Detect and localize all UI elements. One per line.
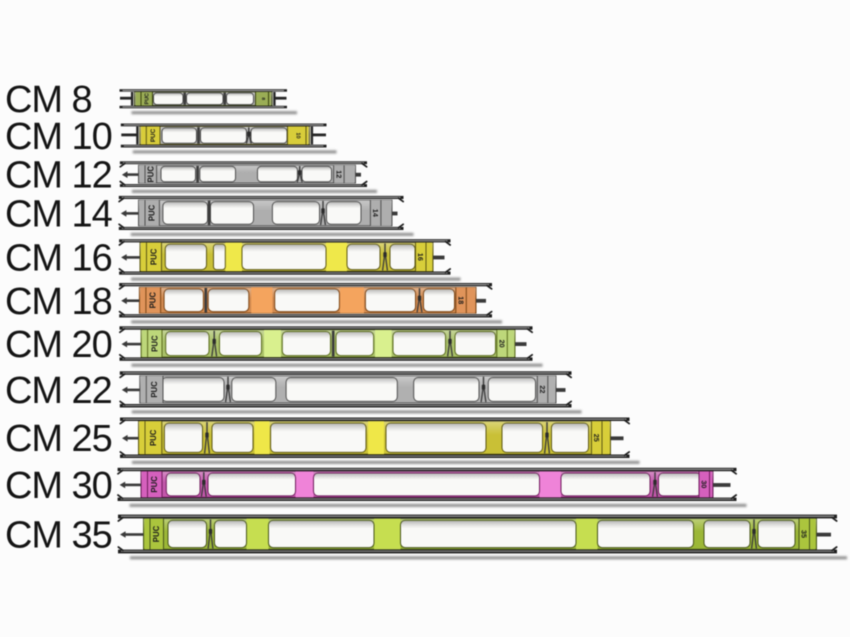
svg-text:PUC: PUC [148,204,157,221]
svg-text:8: 8 [260,97,266,100]
svg-text:CM 35: CM 35 [5,515,112,557]
svg-text:14: 14 [371,209,380,217]
svg-text:PUC: PUC [149,429,158,446]
svg-text:PUC: PUC [144,93,150,104]
svg-text:CM 18: CM 18 [5,281,112,323]
svg-text:CM 22: CM 22 [5,370,112,412]
svg-text:CM 14: CM 14 [5,193,113,235]
svg-text:PUC: PUC [146,166,155,183]
svg-text:PUC: PUC [150,248,159,265]
svg-text:12: 12 [334,170,343,178]
svg-text:22: 22 [538,385,547,393]
svg-text:16: 16 [416,253,425,261]
svg-text:35: 35 [800,530,809,538]
svg-text:CM 12: CM 12 [5,155,112,197]
svg-text:PUC: PUC [150,381,159,398]
svg-text:CM 20: CM 20 [5,324,112,366]
svg-text:CM 8: CM 8 [5,79,92,121]
svg-text:PUC: PUC [150,128,157,142]
svg-text:CM 25: CM 25 [5,418,112,460]
svg-text:30: 30 [700,480,709,488]
svg-text:PUC: PUC [152,525,161,542]
svg-text:25: 25 [592,434,601,442]
svg-text:PUC: PUC [149,292,158,309]
svg-text:PUC: PUC [150,476,159,493]
svg-text:20: 20 [498,340,507,348]
svg-text:CM 16: CM 16 [5,237,112,279]
svg-text:CM 10: CM 10 [5,116,112,158]
svg-text:10: 10 [295,132,301,138]
svg-text:18: 18 [457,296,466,304]
svg-text:CM 30: CM 30 [5,465,112,507]
svg-text:PUC: PUC [150,335,159,352]
